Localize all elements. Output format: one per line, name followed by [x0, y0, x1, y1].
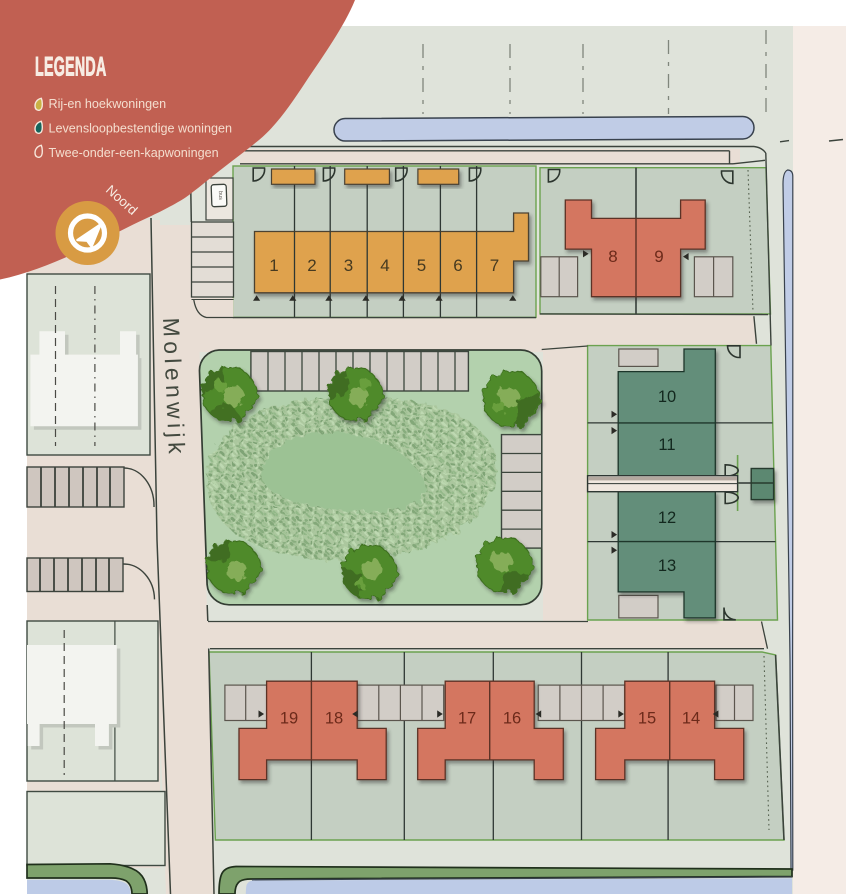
svg-text:11: 11: [658, 436, 675, 454]
svg-text:5: 5: [417, 256, 426, 275]
svg-text:17: 17: [458, 710, 476, 728]
svg-text:4: 4: [380, 256, 389, 275]
svg-text:LEGENDA: LEGENDA: [35, 52, 107, 82]
svg-text:Twee-onder-een-kapwoningen: Twee-onder-een-kapwoningen: [49, 146, 219, 160]
svg-text:2: 2: [307, 256, 316, 275]
svg-text:18: 18: [325, 710, 343, 728]
svg-text:10: 10: [658, 388, 676, 406]
svg-text:Rij-en hoekwoningen: Rij-en hoekwoningen: [49, 97, 167, 111]
svg-text:16: 16: [503, 710, 521, 728]
svg-text:3: 3: [344, 256, 353, 275]
svg-text:bus: bus: [217, 191, 223, 200]
svg-text:7: 7: [490, 256, 499, 275]
svg-text:1: 1: [269, 256, 278, 275]
svg-text:13: 13: [658, 557, 676, 575]
svg-text:6: 6: [453, 256, 462, 275]
svg-text:Levensloopbestendige woningen: Levensloopbestendige woningen: [49, 122, 232, 136]
svg-text:15: 15: [638, 710, 656, 728]
svg-text:8: 8: [608, 247, 617, 266]
svg-text:12: 12: [658, 509, 676, 527]
svg-text:9: 9: [654, 247, 663, 266]
svg-text:19: 19: [280, 710, 298, 728]
svg-text:14: 14: [682, 710, 700, 728]
